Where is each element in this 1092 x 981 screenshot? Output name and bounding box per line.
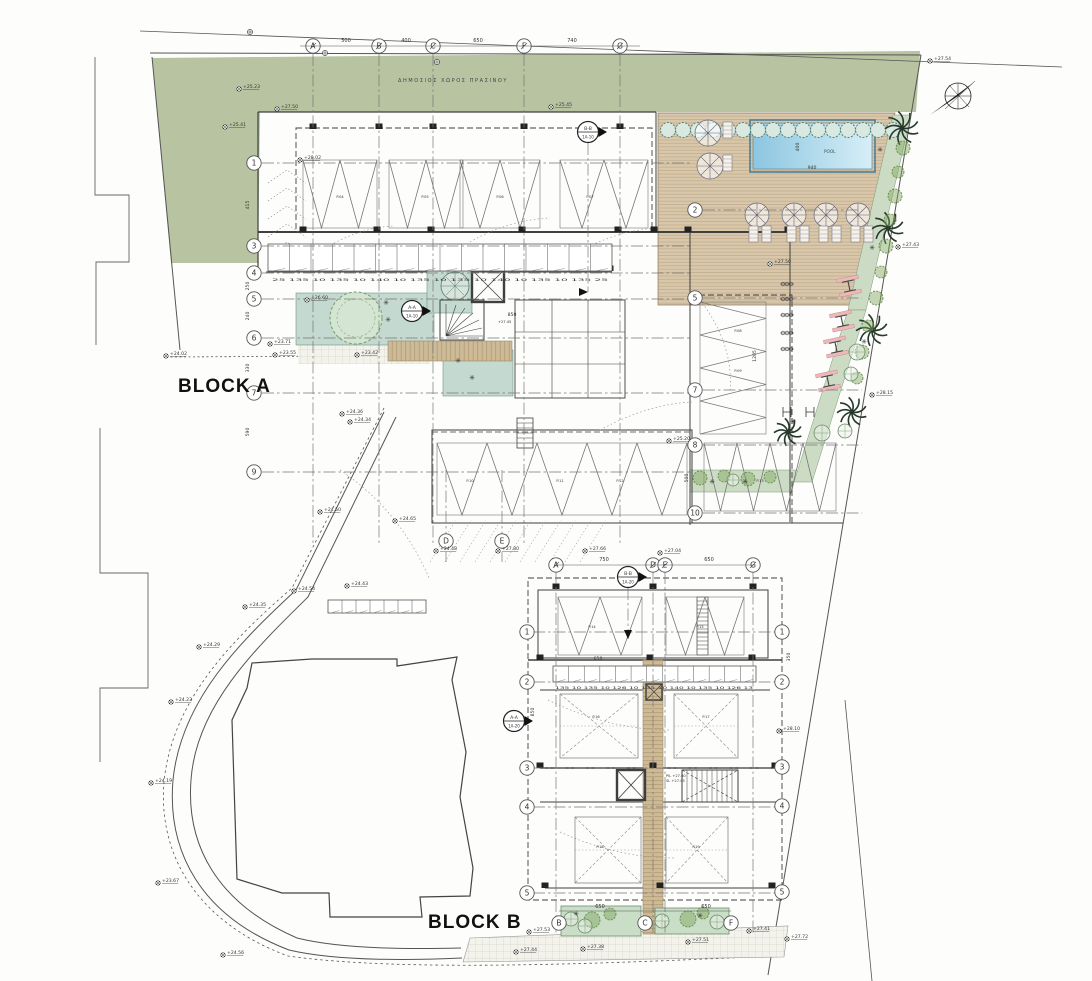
star-shrub-icon: ✳ — [790, 418, 796, 426]
parking-code: P.17 — [702, 715, 709, 719]
column — [428, 227, 435, 233]
large-tree-icon — [330, 292, 382, 344]
spot-elevation-value: +25.41 — [229, 122, 246, 128]
shrub-icon — [680, 911, 696, 927]
shrub-icon — [892, 166, 904, 178]
star-shrub-icon: ✳ — [742, 478, 748, 486]
existing-building-footprint — [232, 657, 473, 917]
spot-elevation-value: +26.60 — [311, 295, 328, 301]
umbrella-spokes — [846, 203, 870, 227]
grid-bubble-label: 5 — [780, 888, 785, 897]
section-ref: 1A-20 — [622, 580, 634, 585]
parking-bay-outline — [303, 160, 377, 228]
parking-code: P.19 — [692, 845, 700, 849]
column — [374, 227, 381, 233]
grid-bubble-label: B — [556, 919, 561, 928]
spot-elevation: +25.20 — [667, 436, 690, 443]
grid-bubble-label: 5 — [252, 295, 257, 304]
site-plan-svg: POOL — [0, 0, 1092, 981]
dimension-value: 500 — [684, 474, 690, 483]
parking-code: P.13 — [756, 479, 763, 483]
hedge-shrub-icon — [781, 123, 796, 138]
parking-chevrons — [700, 302, 766, 434]
hedge-shrub-icon — [856, 123, 871, 138]
star-shrub-icon: ✳ — [869, 244, 875, 252]
bike-rack-icon — [780, 313, 794, 317]
parking-code: P.15 — [696, 625, 703, 629]
palm-trunk — [850, 410, 853, 413]
parking-bay-outline — [666, 597, 744, 655]
spot-elevation-value: +27.38 — [587, 944, 604, 950]
dimension-value: 850 — [530, 708, 536, 717]
neighbor-parcels — [95, 57, 148, 762]
palm-trunk — [786, 430, 789, 433]
grid-bubble-label: 1 — [252, 159, 257, 168]
block-a-apartment-block — [515, 300, 625, 398]
column — [685, 227, 692, 233]
tree-icon — [710, 915, 724, 929]
arc-4 — [700, 300, 730, 392]
dimension-value: 650 — [704, 557, 714, 563]
cell-dimension-row: 135 10 135 10 126 10 135 10 140 10 135 1… — [555, 686, 753, 690]
tree-icon — [849, 344, 865, 360]
storage-row — [328, 600, 426, 613]
sun-lounger-icon — [723, 122, 732, 138]
spot-elevation-value: +24.50 — [324, 507, 341, 513]
spot-elevation-value: +27.53 — [533, 927, 550, 933]
dimension-value: 400 — [795, 143, 801, 152]
shrub-icon — [764, 471, 776, 483]
tree-icon — [655, 914, 669, 928]
parking-code: P.11 — [556, 479, 563, 483]
dimension-value: 500 — [341, 38, 351, 44]
umbrella-spokes — [782, 203, 806, 227]
spot-elevation: +27.53 — [527, 927, 550, 934]
spot-elevation: +24.29 — [197, 642, 220, 649]
spot-elevation-value: +24.29 — [203, 642, 220, 648]
umbrella-spokes — [697, 153, 723, 179]
sun-lounger-icon — [819, 226, 828, 242]
spot-elevation: +24.56 — [221, 950, 244, 957]
spot-elevation-value: +27.04 — [664, 548, 681, 554]
spot-elevation: +27.72 — [785, 934, 808, 941]
spot-elevation-value: +24.35 — [249, 602, 266, 608]
grid-bubble-label: 6 — [252, 334, 257, 343]
star-shrub-icon: ✳ — [861, 338, 867, 346]
block-a-label: BLOCK A — [178, 376, 271, 397]
star-shrub-icon: ✳ — [385, 316, 391, 324]
neighbor-step-bottom — [100, 428, 148, 762]
spot-elevation: +24.36 — [340, 409, 363, 416]
hedge-shrub-icon — [826, 123, 841, 138]
spot-elevation: +23.71 — [268, 339, 291, 346]
column — [657, 883, 664, 889]
shrub-icon — [888, 189, 902, 203]
grid-bubble-label: 5 — [693, 294, 698, 303]
section-marker: A-A1A-20 — [504, 711, 534, 732]
spot-elevation: +24.65 — [393, 516, 416, 523]
shrub-icon — [879, 239, 893, 253]
umbrella-icon — [697, 153, 723, 179]
hedge-shrub-icon — [661, 123, 676, 138]
parking-code: P.10 — [466, 479, 474, 483]
spot-elevation-value: +24.23 — [175, 697, 192, 703]
section-arrow-icon — [525, 716, 534, 726]
spot-elevation-value: +24.48 — [440, 546, 457, 552]
shrub-icon — [693, 471, 707, 485]
spot-elevation-value: +25.45 — [555, 102, 572, 108]
gym-equipment-icon — [806, 407, 814, 417]
core-annotation: +27.45 — [498, 320, 511, 324]
grid-bubble-label: 3 — [525, 764, 530, 773]
star-shrub-icon: ✳ — [697, 912, 703, 920]
parking-code: P.06 — [496, 195, 504, 199]
grid-bubble-label: F — [729, 919, 733, 928]
parking-code: P.08 — [734, 329, 742, 333]
column — [647, 655, 654, 661]
parking-bay-outline — [389, 160, 463, 228]
star-shrub-icon: ✳ — [455, 357, 461, 365]
dimension-value: 850 — [508, 312, 517, 318]
spot-elevation-value: +24.54 — [298, 586, 315, 592]
grid-bubble-label: 2 — [693, 206, 698, 215]
column — [519, 227, 526, 233]
grid-bubble-label: E — [500, 537, 505, 546]
dimension-value: 750 — [599, 557, 609, 563]
star-shrub-icon: ✳ — [469, 374, 475, 382]
pool-label: POOL — [824, 149, 836, 154]
ramp-hatch-b — [430, 520, 606, 562]
palm-trunk — [886, 226, 889, 229]
grid-bubble-label: 10 — [690, 509, 700, 518]
palm-trunk — [900, 126, 903, 129]
parking-code: P.04 — [336, 195, 344, 199]
spot-elevation-value: +28.15 — [876, 390, 893, 396]
block-b-label: BLOCK B — [428, 912, 522, 933]
grid-bubble-label: 4 — [525, 803, 530, 812]
section-ref: 1A-20 — [508, 724, 520, 729]
star-shrub-icon: ✳ — [709, 478, 715, 486]
spot-elevation-value: +24.65 — [399, 516, 416, 522]
cell-dimension-row: 25 135 10 135 10 140 10 135 10 135 10 14… — [272, 278, 608, 282]
umbrella-icon — [846, 203, 870, 227]
spot-elevation-value: +27.44 — [520, 947, 537, 953]
sun-lounger-icon — [762, 226, 771, 242]
parking-code: P.09 — [734, 369, 742, 373]
section-arrow-end-icon — [579, 288, 588, 296]
umbrella-spokes — [745, 203, 769, 227]
spot-elevation-value: +23.42 — [361, 350, 378, 356]
spot-elevation: +24.50 — [318, 507, 341, 514]
ramp-chevrons-a — [268, 170, 306, 255]
spot-elevation-value: +24.34 — [354, 417, 371, 423]
hedge-shrub-icon — [811, 123, 826, 138]
umbrella-icon — [814, 203, 838, 227]
spot-elevation-value: +27.80 — [502, 546, 519, 552]
spot-elevation: +27.04 — [658, 548, 681, 555]
east-road-line — [845, 700, 872, 981]
spot-elevation-value: +23.67 — [162, 878, 179, 884]
arc-8 — [340, 470, 430, 580]
planting-strip-mid — [794, 310, 866, 482]
block-a-lower-dashed — [432, 432, 692, 523]
umbrella-icon — [745, 203, 769, 227]
spot-elevation: +24.48 — [434, 546, 457, 553]
sun-lounger-icon — [787, 226, 796, 242]
arc-5 — [600, 402, 692, 430]
section-marker: B-B1A-20 — [618, 567, 648, 640]
umbrella-spokes — [814, 203, 838, 227]
spot-elevation: +28.02 — [298, 155, 321, 162]
timber-walkway-a — [388, 341, 512, 361]
parking-code: P.05 — [421, 195, 428, 199]
spot-elevation-value: +27.41 — [753, 926, 770, 932]
star-shrub-icon: ✳ — [383, 299, 389, 307]
spot-elevation-value: +23.71 — [274, 339, 291, 345]
spot-elevation: +27.43 — [896, 242, 919, 249]
spot-elevation-value: +27.66 — [589, 546, 606, 552]
sun-lounger-icon — [749, 226, 758, 242]
spot-elevation-value: +27.50 — [774, 259, 791, 265]
shrub-icon — [604, 908, 616, 920]
spot-elevation: +24.23 — [169, 697, 192, 704]
spot-elevation: +23.67 — [156, 878, 179, 885]
parking-bay-outline — [460, 160, 540, 228]
section-arrow-icon — [639, 572, 648, 582]
grid-bubble-label: 7 — [693, 386, 698, 395]
dimension-value: 650 — [473, 38, 483, 44]
grid-bubble-label: 4 — [252, 269, 257, 278]
spot-elevation-value: +27.50 — [281, 104, 298, 110]
column — [749, 655, 756, 661]
umbrella-icon — [695, 120, 721, 146]
spot-elevation: +28.15 — [870, 390, 893, 397]
spot-elevation: +24.34 — [348, 417, 371, 424]
grid-bubble-label: 1 — [525, 628, 530, 637]
spot-elevation-value: +23.55 — [279, 350, 296, 356]
section-ref: 1A-10 — [582, 135, 594, 140]
existing-building — [232, 657, 473, 917]
umbrella-icon — [782, 203, 806, 227]
parking-bay-outline — [700, 302, 766, 434]
shrub-icon — [869, 291, 883, 305]
shrub-icon — [896, 141, 910, 155]
tree-icon — [727, 474, 739, 486]
dimension-value: 650 — [701, 904, 711, 910]
parking-chevrons — [460, 160, 540, 228]
grid-bubble-label: 5 — [525, 889, 530, 898]
parking-code: P.18 — [596, 845, 604, 849]
sun-lounger-icon — [723, 155, 732, 171]
spot-elevation-value: +25.23 — [243, 84, 260, 90]
north-arrow-icon — [930, 81, 975, 115]
spot-elevation-value: +24.02 — [170, 351, 187, 357]
dimension-value: 240 — [245, 312, 251, 321]
dimension-value: 650 — [594, 656, 603, 662]
parking-chevrons — [558, 597, 642, 655]
stair-b-diagonals — [682, 770, 738, 802]
dimension-value: 650 — [595, 904, 605, 910]
palm-tree-icon — [774, 418, 801, 446]
grid-bubble-label: 1 — [780, 628, 785, 637]
grid-bubble-label: 3 — [252, 242, 257, 251]
shrub-icon — [862, 320, 874, 332]
spot-elevation-value: +27.51 — [692, 937, 709, 943]
hedge-shrub-icon — [736, 123, 751, 138]
grid-bubble-label: 2 — [525, 678, 530, 687]
drawing-canvas: POOL — [0, 0, 1092, 981]
section-label: B-B — [624, 571, 632, 577]
block-a-lower-hall — [432, 430, 692, 523]
parking-chevrons — [666, 597, 744, 655]
compass-needle — [930, 82, 974, 115]
parking-chevrons — [560, 160, 648, 228]
dimension-value: 1205 — [752, 350, 758, 362]
dimension-value: 415 — [245, 201, 251, 210]
public-green-label: ΔΗΜΟΣΙΟΣ ΧΩΡΟΣ ΠΡΑΣΙΝΟΥ — [398, 78, 508, 84]
grid-bubble-label: 2 — [780, 678, 785, 687]
sun-lounger-icon — [851, 226, 860, 242]
dimension-value: 740 — [567, 38, 577, 44]
dimension-value: 350 — [786, 653, 792, 662]
spot-elevation-value: +24.19 — [155, 778, 172, 784]
grid-bubble-label: D — [443, 537, 449, 546]
star-shrub-icon: ✳ — [877, 146, 883, 154]
parking-chevrons — [303, 160, 377, 228]
column — [651, 227, 658, 233]
sun-lounger-icon — [800, 226, 809, 242]
section-arrow-icon — [599, 127, 608, 137]
dimension-value: 400 — [401, 38, 411, 44]
parking-bay-outline — [558, 597, 642, 655]
column — [537, 763, 544, 769]
hedge-shrub-icon — [841, 123, 856, 138]
spot-elevation-value: +28.02 — [304, 155, 321, 161]
tree-icon — [838, 424, 852, 438]
hedge-shrub-icon — [871, 123, 886, 138]
tree-icon — [578, 919, 592, 933]
umbrella-spokes — [695, 120, 721, 146]
spot-elevation: +24.43 — [345, 581, 368, 588]
spot-elevation-value: +24.36 — [346, 409, 363, 415]
spot-elevation-value: +24.43 — [351, 581, 368, 587]
section-label: B-B — [584, 126, 592, 132]
spot-elevation: +27.66 — [583, 546, 606, 553]
parking-code: P.14 — [588, 625, 596, 629]
spot-elevation-value: +27.43 — [902, 242, 919, 248]
bike-rack-icon — [780, 347, 794, 351]
hedge-shrub-icon — [676, 123, 691, 138]
shrub-icon — [884, 214, 896, 226]
dimension-value: 590 — [245, 428, 251, 437]
block-a-canopy-dashed — [296, 128, 652, 232]
stair-a2-treads — [517, 423, 533, 443]
gym-bars — [806, 407, 814, 417]
spot-elevation-value: +28.10 — [783, 726, 800, 732]
parking-bay-outline — [560, 160, 648, 228]
grid-bubble-label: 8 — [693, 441, 698, 450]
spot-elevation: +24.54 — [292, 586, 315, 593]
section-label: A-A — [510, 715, 519, 721]
dimension-value: 940 — [808, 165, 817, 171]
storage-row — [553, 666, 756, 682]
spot-elevation-value: +25.20 — [673, 436, 690, 442]
hedge-shrub-icon — [766, 123, 781, 138]
grid-bubble-label: 4 — [780, 802, 785, 811]
grid-bubble-label: 9 — [252, 468, 257, 477]
parking-code: P.16 — [592, 715, 600, 719]
sun-lounger-icon — [832, 226, 841, 242]
bike-rack-icon — [780, 331, 794, 335]
column — [537, 655, 544, 661]
grid-bubble-label: C — [642, 919, 647, 928]
parking-code: P.07 — [586, 195, 593, 199]
tree-icon — [814, 425, 830, 441]
dimension-value: 330 — [245, 364, 251, 373]
section-ref: 1A-10 — [406, 314, 418, 319]
parking-chevrons — [389, 160, 463, 228]
spot-elevation-value: +27.54 — [934, 56, 951, 62]
spot-elevation: +24.35 — [243, 602, 266, 609]
compass-cross — [945, 81, 975, 109]
shrub-icon — [875, 266, 887, 278]
column — [300, 227, 307, 233]
spot-elevation: +28.10 — [777, 726, 800, 733]
core-annotation: PIL +27.60 — [666, 774, 686, 778]
dimension-value: 250 — [245, 282, 251, 291]
hedge-shrub-icon — [796, 123, 811, 138]
core-annotation: SL +27.45 — [666, 779, 685, 783]
hedge-shrub-icon — [751, 123, 766, 138]
section-label: A-A — [408, 305, 417, 311]
sun-lounger-icon — [864, 226, 873, 242]
spot-elevation: +24.19 — [149, 778, 172, 785]
column — [769, 883, 776, 889]
grid-bubble-label: 3 — [780, 763, 785, 772]
section-arrow-end-icon — [624, 630, 632, 639]
column — [542, 883, 549, 889]
spot-elevation-value: +27.72 — [791, 934, 808, 940]
spot-elevation-value: +24.56 — [227, 950, 244, 956]
column — [615, 227, 622, 233]
tree-icon — [844, 367, 858, 381]
neighbor-step-top — [95, 57, 129, 345]
